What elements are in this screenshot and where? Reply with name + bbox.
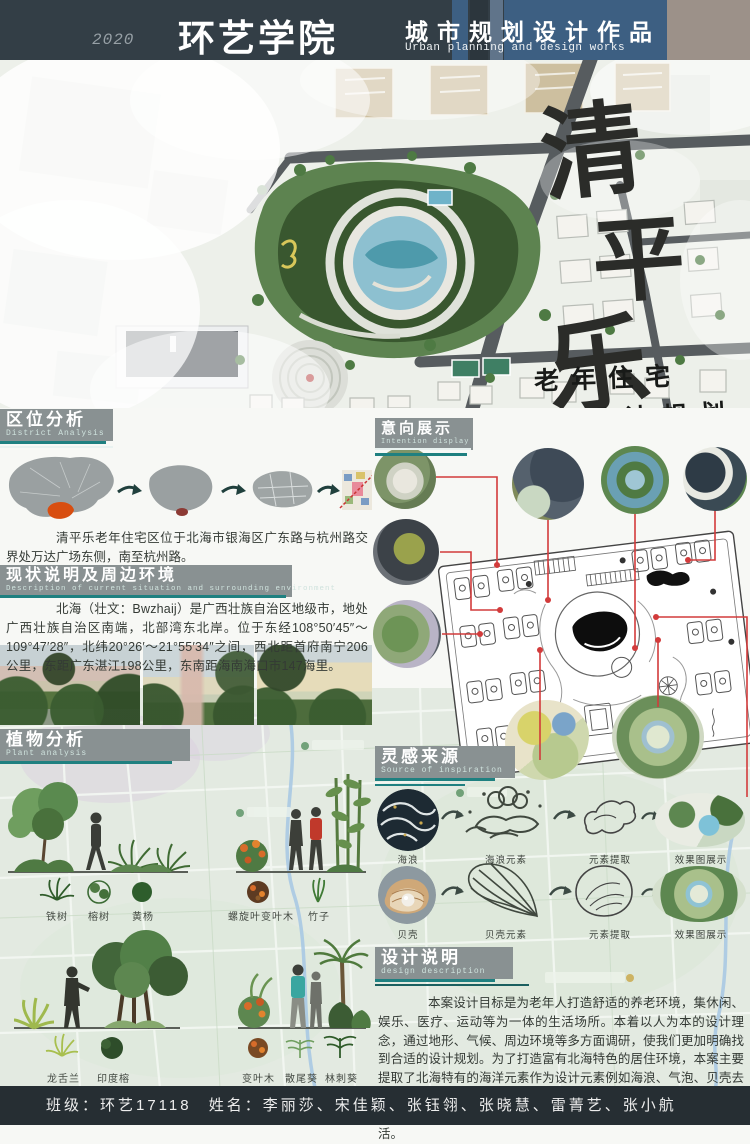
inspiration-label-1: 海浪 — [386, 852, 430, 866]
section-district-title: 区位分析 — [6, 411, 107, 429]
wave-element-lineart — [462, 786, 550, 846]
wave-photo — [377, 789, 439, 851]
description-underline — [375, 979, 495, 982]
section-intention-bar: 意向展示 Intention display — [375, 418, 473, 450]
shell-photo — [378, 866, 436, 924]
china-map — [9, 457, 114, 519]
plant-label-10: 林刺葵 — [325, 1070, 358, 1085]
poster: { "header": { "year": "2020", "school": … — [0, 0, 750, 1125]
section-description-subtitle: design description — [381, 967, 507, 976]
section-description-title: 设计说明 — [381, 949, 507, 967]
shell-render-preview — [652, 866, 746, 922]
footer-names: 姓名：李丽莎、宋佳颖、张钰翎、张晓慧、雷菁艺、张小航 — [209, 1097, 677, 1114]
person-couple — [289, 807, 323, 870]
header-taupe-block — [667, 0, 750, 60]
bamboo-stand — [324, 774, 372, 872]
section-current-title: 现状说明及周边环境 — [6, 567, 286, 585]
city-district-map — [253, 471, 313, 507]
plant-label-7: 印度榕 — [97, 1070, 130, 1085]
arrow-icon — [548, 882, 574, 900]
aerial-render: 清 平 乐 老年住宅 设计规划 — [0, 60, 750, 408]
header-school-name: 环艺学院 — [178, 8, 338, 62]
section-intention-title: 意向展示 — [381, 420, 467, 438]
shell-element-lineart — [463, 858, 543, 922]
intention-photo-courtyard — [512, 448, 584, 520]
description-underline-2 — [375, 984, 529, 986]
section-district-bar: 区位分析 District Analysis — [0, 409, 113, 441]
plant-icons-row2 — [46, 1034, 356, 1059]
hero-subtitle-1: 老年住宅 — [533, 356, 682, 397]
inspiration-label-5: 贝壳 — [386, 927, 430, 941]
wave-extraction-outline — [578, 792, 640, 844]
plant-label-6: 龙舌兰 — [47, 1070, 80, 1085]
section-inspiration-bar: 灵感来源 Source of inspiration — [375, 746, 515, 778]
section-inspiration-subtitle: Source of inspiration — [381, 766, 509, 775]
inspiration-underline-2 — [375, 784, 465, 786]
person-couple-2 — [290, 965, 322, 1029]
footer-credits: 班级：环艺17118 姓名：李丽莎、宋佳颖、张钰翎、张晓慧、雷菁艺、张小航 — [0, 1086, 750, 1125]
plant-label-3: 黄杨 — [132, 908, 154, 923]
section-district-subtitle: District Analysis — [6, 429, 107, 438]
plant-label-8: 变叶木 — [242, 1070, 275, 1085]
section-description-bar: 设计说明 design description — [375, 947, 513, 979]
section-current-bar: 现状说明及周边环境 Description of current situati… — [0, 565, 292, 597]
ficus-trees — [92, 930, 188, 1028]
section-plant-bar: 植物分析 Plant analysis — [0, 729, 190, 761]
tree-banyan — [8, 782, 78, 872]
section-current-subtitle: Description of current situation and sur… — [6, 585, 286, 594]
current-paragraph: 北海（壮文：Bwzhaij）是广西壮族自治区地级市，地处广西壮族自治区南端，北部… — [6, 600, 368, 676]
section-intention-subtitle: Intention display — [381, 438, 467, 447]
wave-render-preview — [655, 793, 745, 847]
intention-photo-pergola — [374, 447, 436, 509]
intention-underline-1 — [375, 448, 471, 450]
person-silhouette-2 — [64, 967, 90, 1029]
agave-plant — [14, 998, 54, 1028]
intention-photo-waterfront — [683, 447, 747, 511]
footer-class: 班级：环艺17118 — [46, 1097, 192, 1114]
inspiration-label-8: 效果图展示 — [668, 927, 734, 941]
intention-photo-ring-building — [373, 519, 439, 585]
plant-label-9: 散尾葵 — [285, 1070, 318, 1085]
croton-bush — [238, 974, 272, 1028]
plant-label-4: 螺旋叶变叶木 — [228, 908, 294, 923]
plant-icons-row1 — [40, 878, 324, 903]
inspiration-label-7: 元素提取 — [570, 927, 650, 941]
plant-elevation-row1 — [0, 768, 372, 918]
inspiration-underline — [375, 778, 495, 781]
site-zoning-map — [340, 470, 372, 510]
plant-label-2: 榕树 — [88, 908, 110, 923]
inspiration-label-3: 元素提取 — [570, 852, 650, 866]
calligraphy-title: 清 平 乐 — [540, 70, 680, 400]
intention-photo-green-mound — [373, 600, 441, 668]
guangxi-map — [149, 465, 212, 516]
plant-label-1: 铁树 — [46, 908, 68, 923]
intention-photo-island-park — [601, 446, 669, 514]
header-title-en: Urban planning and design works — [405, 42, 625, 54]
district-paragraph: 清平乐老年住宅区位于北海市银海区广东路与杭州路交界处万达广场东侧，南至杭州路。 — [6, 529, 368, 567]
district-maps — [0, 448, 372, 530]
header-band: 2020 环艺学院 城市规划设计作品 Urban planning and de… — [0, 0, 750, 60]
plant-underline — [0, 761, 172, 764]
current-underline — [0, 595, 286, 598]
district-underline-2 — [0, 446, 113, 448]
plant-label-5: 竹子 — [308, 908, 330, 923]
person-silhouette — [86, 813, 106, 871]
section-plant-title: 植物分析 — [6, 731, 184, 749]
plant-elevation-row2 — [0, 928, 372, 1068]
intention-underline-2 — [375, 453, 467, 456]
inspiration-label-2: 海浪元素 — [466, 852, 546, 866]
header-year: 2020 — [92, 31, 134, 49]
shell-extraction-outline — [572, 862, 636, 920]
inspiration-label-6: 贝壳元素 — [466, 927, 546, 941]
inspiration-label-4: 效果图展示 — [668, 852, 734, 866]
district-underline — [0, 441, 106, 444]
section-plant-subtitle: Plant analysis — [6, 749, 184, 758]
arrow-icon — [552, 806, 578, 824]
section-inspiration-title: 灵感来源 — [381, 748, 509, 766]
palm-trees — [314, 940, 371, 1028]
flower-bush — [236, 840, 268, 872]
